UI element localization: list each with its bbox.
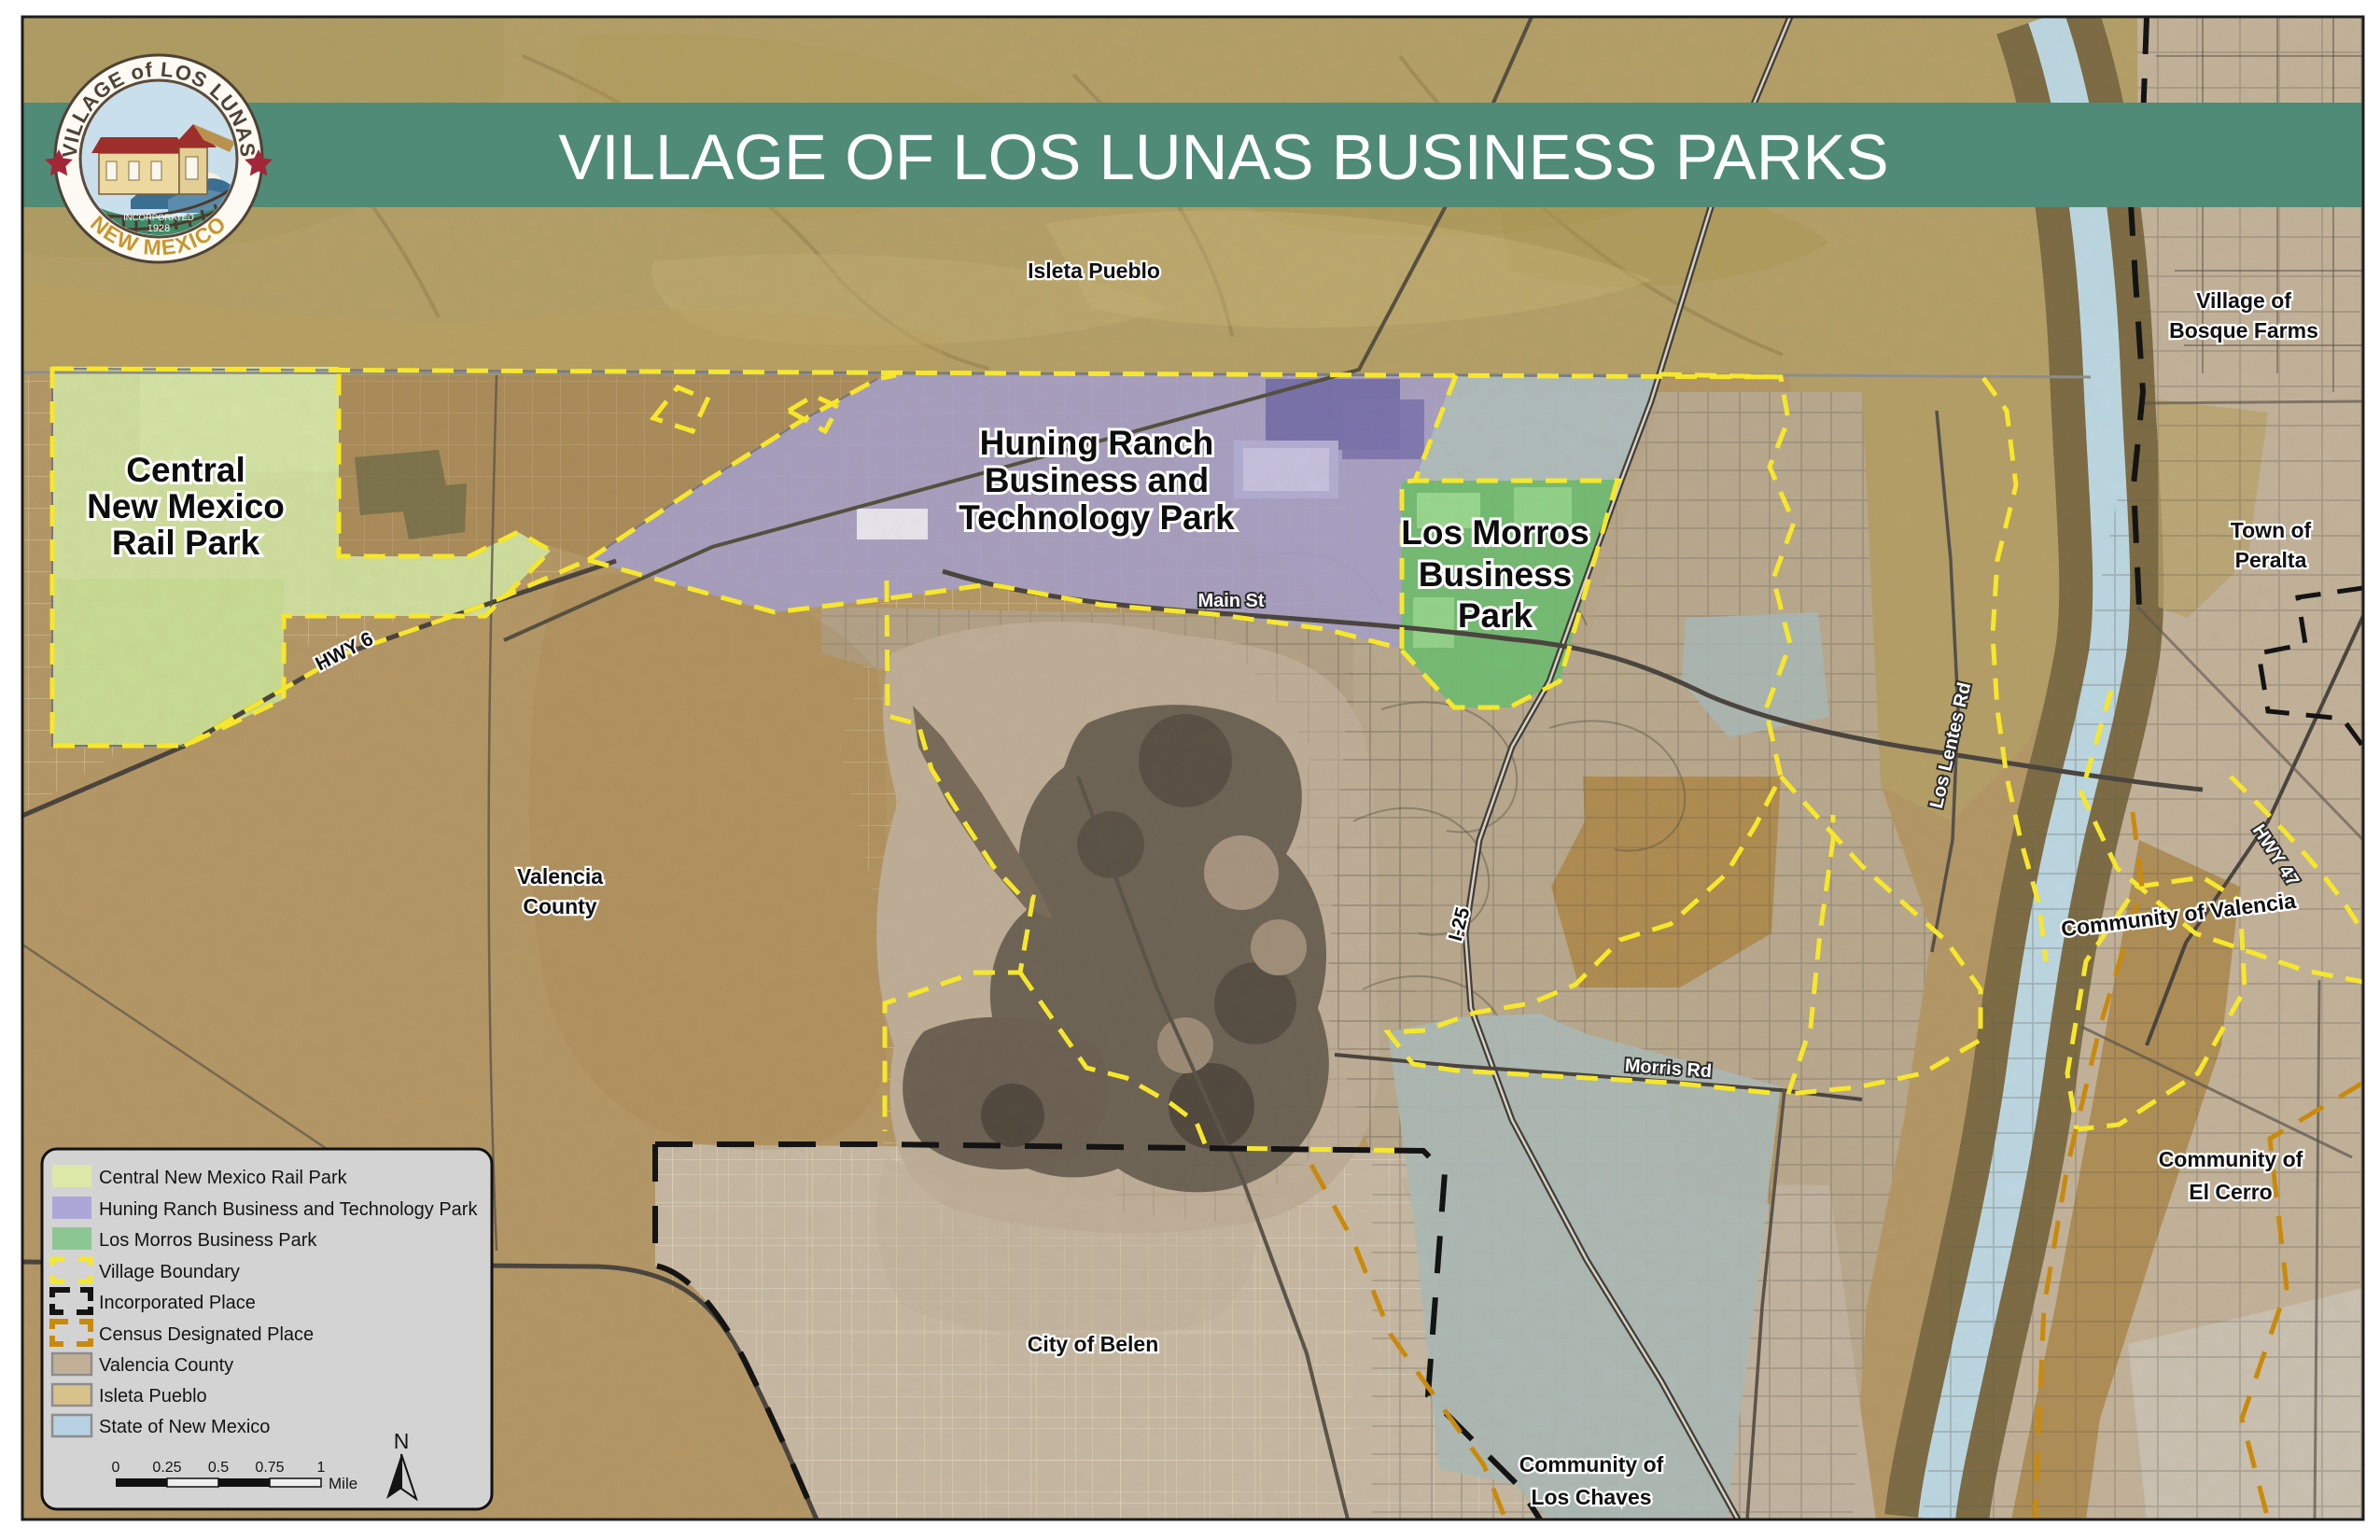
- svg-text:Los Morros Business Park: Los Morros Business Park: [99, 1230, 317, 1251]
- svg-text:State of New Mexico: State of New Mexico: [99, 1417, 270, 1437]
- svg-text:1928: 1928: [147, 223, 170, 234]
- svg-text:Bosque Farms: Bosque Farms: [2169, 318, 2318, 343]
- svg-text:Village Boundary: Village Boundary: [99, 1262, 240, 1282]
- svg-text:Peralta: Peralta: [2235, 548, 2307, 572]
- svg-text:Valencia County: Valencia County: [99, 1355, 233, 1376]
- svg-text:INCORPORATED: INCORPORATED: [123, 213, 194, 223]
- svg-text:Village of: Village of: [2196, 288, 2291, 313]
- svg-text:Technology Park: Technology Park: [959, 498, 1235, 537]
- svg-text:0.25: 0.25: [152, 1460, 181, 1476]
- svg-text:0.75: 0.75: [255, 1460, 284, 1476]
- svg-text:Main St: Main St: [1197, 591, 1264, 611]
- svg-text:El Cerro: El Cerro: [2189, 1180, 2272, 1204]
- svg-text:Rail Park: Rail Park: [112, 524, 260, 562]
- svg-text:VILLAGE OF LOS LUNAS BUSINESS: VILLAGE OF LOS LUNAS BUSINESS PARKS: [558, 121, 1888, 193]
- svg-text:Mile: Mile: [329, 1475, 357, 1492]
- svg-text:Isleta Pueblo: Isleta Pueblo: [99, 1386, 207, 1407]
- svg-text:Census Designated Place: Census Designated Place: [99, 1324, 314, 1345]
- svg-text:Community of: Community of: [2159, 1147, 2303, 1171]
- svg-text:Community of: Community of: [1519, 1452, 1664, 1477]
- svg-text:Park: Park: [1458, 596, 1533, 635]
- svg-text:N: N: [394, 1429, 410, 1453]
- svg-text:1: 1: [317, 1460, 326, 1476]
- svg-text:New Mexico: New Mexico: [87, 487, 285, 525]
- svg-text:City of Belen: City of Belen: [1028, 1332, 1159, 1356]
- svg-text:Town of: Town of: [2231, 518, 2312, 542]
- svg-text:Huning Ranch Business and Tech: Huning Ranch Business and Technology Par…: [99, 1199, 478, 1220]
- svg-text:Central: Central: [126, 451, 245, 489]
- svg-text:Los Chaves: Los Chaves: [1531, 1485, 1651, 1509]
- svg-text:Huning Ranch: Huning Ranch: [980, 424, 1214, 462]
- svg-text:County: County: [523, 894, 596, 918]
- svg-text:Business and: Business and: [985, 461, 1210, 499]
- svg-text:0: 0: [112, 1460, 120, 1476]
- svg-text:Isleta Pueblo: Isleta Pueblo: [1028, 259, 1160, 283]
- svg-text:Valencia: Valencia: [517, 864, 603, 889]
- svg-text:Incorporated Place: Incorporated Place: [99, 1293, 256, 1313]
- svg-text:Los Morros: Los Morros: [1401, 513, 1589, 552]
- svg-text:0.5: 0.5: [208, 1460, 229, 1476]
- svg-text:Central New Mexico Rail Park: Central New Mexico Rail Park: [99, 1168, 348, 1188]
- svg-text:Business: Business: [1419, 555, 1573, 594]
